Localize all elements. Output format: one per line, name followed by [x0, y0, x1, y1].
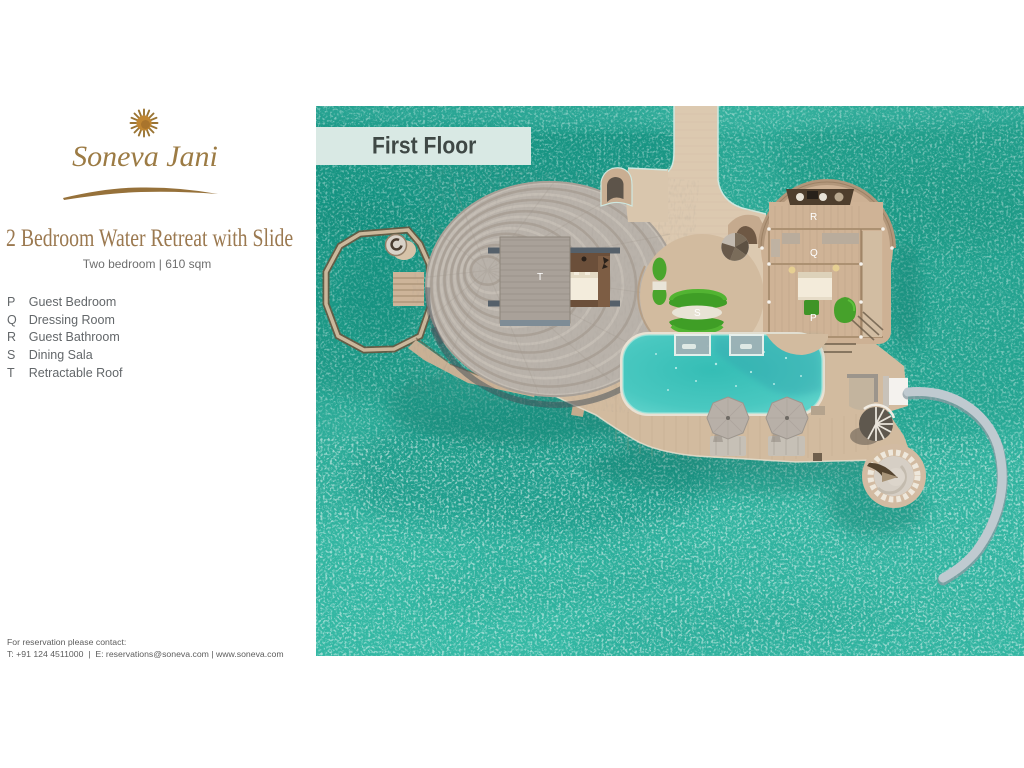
svg-text:T: T	[537, 272, 543, 283]
svg-text:First Floor: First Floor	[372, 132, 477, 159]
svg-text:Q: Q	[810, 248, 818, 259]
svg-text:P: P	[810, 313, 817, 324]
svg-text:S: S	[694, 308, 701, 319]
svg-text:R: R	[810, 212, 817, 223]
